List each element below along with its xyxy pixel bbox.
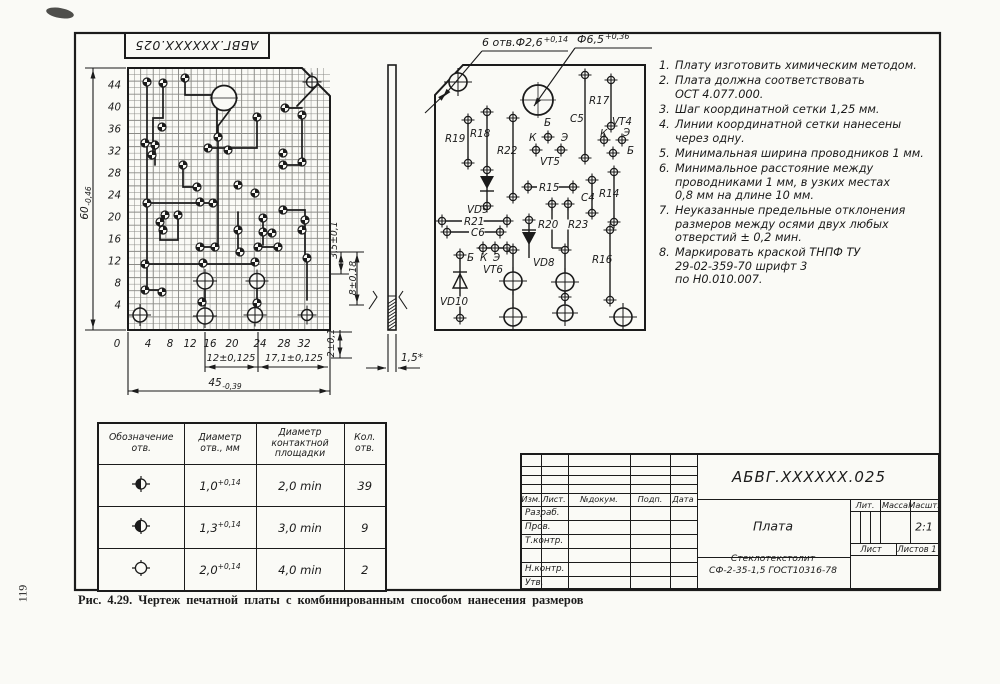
tb-line [870, 511, 871, 543]
top-designation-stamp: АБВГ.XXXXXX.025 [124, 32, 270, 59]
note-number: 4. [659, 118, 675, 145]
page-number: 119 [15, 585, 30, 603]
part-name: Плата [753, 519, 793, 534]
tb-col-header: Лист. [542, 494, 565, 504]
dimension-label: 60-0,46 [79, 186, 93, 220]
note-text: Плату изготовить химическим методом. [675, 59, 917, 72]
hole-symbol-icon [128, 558, 154, 578]
axis-tick-label: 12 [108, 256, 121, 268]
axis-tick-label: 4 [145, 338, 152, 350]
table-header-row: Обозначение отв. Диаметр отв., мм Диамет… [98, 423, 386, 465]
tb-line [697, 455, 698, 588]
table-row: 1,0+0,14 2,0 min 39 [98, 465, 386, 507]
hole-symbol-icon [128, 516, 154, 536]
note-number: 2. [659, 74, 675, 101]
tb-lit-header: Лит. [856, 500, 875, 510]
note-text: Минимальное расстояние между проводникам… [675, 162, 890, 202]
note-item: 4.Линии координатной сетки нанесены чере… [659, 118, 945, 145]
tb-col-header: №докум. [580, 494, 618, 504]
tb-line [522, 506, 697, 507]
axis-tick-label: 4 [114, 300, 121, 312]
tb-col-header: Подп. [638, 494, 663, 504]
hole-count: 2 [344, 549, 386, 592]
tb-line [522, 534, 697, 535]
tb-line [522, 466, 697, 467]
tb-mass-header: Масса [882, 500, 908, 510]
component-label: R16 [592, 254, 613, 266]
col-header: Диаметр отв., мм [198, 432, 241, 454]
holes-table: Обозначение отв. Диаметр отв., мм Диамет… [97, 422, 387, 592]
hole-count: 9 [344, 507, 386, 549]
note-item: 7.Неуказанные предельные отклонения разм… [659, 204, 945, 244]
hole-count: 39 [344, 465, 386, 507]
component-label: VT5 [540, 156, 560, 168]
component-label: VT6 [483, 264, 503, 276]
component-label: C4 [581, 192, 595, 204]
dimension-label: 8±0,18 [348, 261, 359, 295]
component-label: К [600, 128, 608, 140]
tb-line [896, 543, 897, 555]
axis-tick-label: 20 [108, 212, 122, 224]
scanned-drawing-page: R19R18R22БКЭVT5C5R17VT4КЭБVD9R21C6R15C4R… [0, 0, 1000, 684]
note-number: 1. [659, 59, 675, 72]
tb-line [910, 499, 911, 543]
col-header: Кол. отв. [354, 432, 375, 454]
tb-row-label: Пров. [525, 522, 551, 532]
component-label: VD9 [467, 204, 489, 216]
tb-row-label: Т.контр. [525, 536, 563, 546]
drawing-designation: АБВГ.XXXXXX.025 [732, 468, 886, 486]
component-label: R15 [539, 182, 559, 194]
note-item: 8.Маркировать краской ТНПФ ТУ 29-02-359-… [659, 246, 945, 286]
gost-title-block: Изм. Лист. №докум. Подп. Дата Разраб. Пр… [520, 453, 940, 590]
tb-line [522, 493, 697, 494]
tb-line [522, 576, 697, 577]
note-text: Плата должна соответствовать ОСТ 4.077.0… [675, 74, 865, 101]
note-number: 3. [659, 103, 675, 116]
tb-line [880, 499, 881, 543]
component-label: Э [492, 252, 500, 264]
component-label: R18 [470, 128, 491, 140]
axis-tick-label: 12 [183, 338, 196, 350]
pad-diameter: 4,0 min [256, 549, 344, 592]
axis-tick-label: 16 [203, 338, 217, 350]
figure-caption: Рис. 4.29. Чертеж печатной платы с комби… [78, 593, 663, 608]
component-label: Б [467, 252, 474, 264]
axis-tick-label: 16 [108, 234, 122, 246]
tb-col-header: Изм. [521, 494, 540, 504]
tb-col-header: Дата [672, 494, 693, 504]
tb-line [522, 475, 697, 476]
note-item: 3.Шаг координатной сетки 1,25 мм. [659, 103, 945, 116]
tb-line [522, 562, 697, 563]
component-label: R19 [445, 133, 465, 145]
col-header: Диаметр контактной площадки [271, 427, 328, 459]
note-number: 7. [659, 204, 675, 244]
axis-tick-label: 24 [108, 190, 121, 202]
dimension-label: 12±0,125 [207, 353, 256, 364]
stamp-text: АБВГ.XXXXXX.025 [135, 38, 258, 53]
hole-diameter: 1,3 [199, 521, 217, 535]
component-label: C6 [471, 227, 485, 239]
component-label: R20 [538, 219, 559, 231]
axis-tick-label: 32 [297, 338, 310, 350]
tb-sheet-label: Лист [860, 544, 881, 554]
col-header: Обозначение отв. [109, 432, 174, 454]
tb-line [697, 499, 938, 500]
component-label: К [529, 132, 537, 144]
axis-tick-label: 20 [225, 338, 239, 350]
tb-sheets-label: Листов 1 [897, 544, 936, 554]
component-label: Б [627, 145, 634, 157]
component-label: R17 [589, 95, 610, 107]
tb-line [522, 548, 697, 549]
tb-line [850, 543, 938, 544]
component-label: VD8 [533, 257, 555, 269]
tb-scale-header: Масшт. [908, 500, 939, 510]
axis-tick-label: 40 [108, 102, 122, 114]
note-number: 8. [659, 246, 675, 286]
pad-diameter: 2,0 min [256, 465, 344, 507]
right-board-view: R19R18R22БКЭVT5C5R17VT4КЭБVD9R21C6R15C4R… [435, 65, 645, 331]
dimension-label: 1,5* [401, 352, 423, 364]
axis-tick-label: 8 [167, 338, 174, 350]
note-item: 1.Плату изготовить химическим методом. [659, 59, 945, 72]
axis-tick-label: 28 [277, 338, 291, 350]
component-label: VD10 [440, 296, 469, 308]
note-item: 2.Плата должна соответствовать ОСТ 4.077… [659, 74, 945, 101]
component-label: C5 [570, 113, 584, 125]
dimension-label: 2±0,1 [326, 329, 337, 358]
hole-symbol-icon [128, 474, 154, 494]
component-label: Э [622, 127, 630, 139]
hole-diameter: 2,0 [199, 563, 217, 577]
component-label: К [480, 252, 488, 264]
tb-row-label: Н.контр. [525, 564, 564, 574]
axis-tick-label: 32 [108, 146, 121, 158]
note-text: Маркировать краской ТНПФ ТУ 29-02-359-70… [675, 246, 860, 286]
note-item: 6.Минимальное расстояние между проводник… [659, 162, 945, 202]
axis-tick-label: 8 [114, 278, 121, 290]
axis-tick-label: 36 [108, 124, 122, 136]
dimension-label: 3,5±0,1 [329, 221, 340, 258]
note-text: Шаг координатной сетки 1,25 мм. [675, 103, 880, 116]
axis-tick-label: 44 [108, 80, 121, 92]
axis-tick-label: 0 [114, 338, 121, 350]
table-row: 1,3+0,14 3,0 min 9 [98, 507, 386, 549]
tb-line [522, 484, 697, 485]
note-text: Линии координатной сетки нанесены через … [675, 118, 901, 145]
note-item: 5.Минимальная ширина проводников 1 мм. [659, 147, 945, 160]
pad-diameter: 3,0 min [256, 507, 344, 549]
callout-label: 6 отв.Ф2,6+0,14 [482, 35, 568, 49]
axis-tick-label: 24 [253, 338, 266, 350]
side-view [388, 65, 396, 330]
dimension-label: 45-0,39 [208, 377, 242, 391]
callout-label: Ф6,5+0,36 [577, 32, 629, 46]
component-label: R22 [497, 145, 517, 157]
tb-line [860, 511, 861, 543]
component-label: Э [560, 132, 568, 144]
note-number: 5. [659, 147, 675, 160]
tb-line [522, 520, 697, 521]
tb-line [697, 557, 850, 558]
dimension-label: 17,1±0,125 [265, 353, 323, 364]
tb-line [850, 555, 938, 556]
component-label: R23 [568, 219, 588, 231]
technical-notes: 1.Плату изготовить химическим методом.2.… [659, 59, 945, 288]
component-label: R14 [599, 188, 619, 200]
hole-diameter: 1,0 [199, 479, 217, 493]
component-label: Б [544, 117, 551, 129]
tb-line [850, 511, 938, 512]
axis-tick-label: 28 [108, 168, 122, 180]
note-text: Минимальная ширина проводников 1 мм. [675, 147, 924, 160]
scale-value: 2:1 [915, 521, 933, 534]
note-number: 6. [659, 162, 675, 202]
note-text: Неуказанные предельные отклонения размер… [675, 204, 905, 244]
table-row: 2,0+0,14 4,0 min 2 [98, 549, 386, 592]
